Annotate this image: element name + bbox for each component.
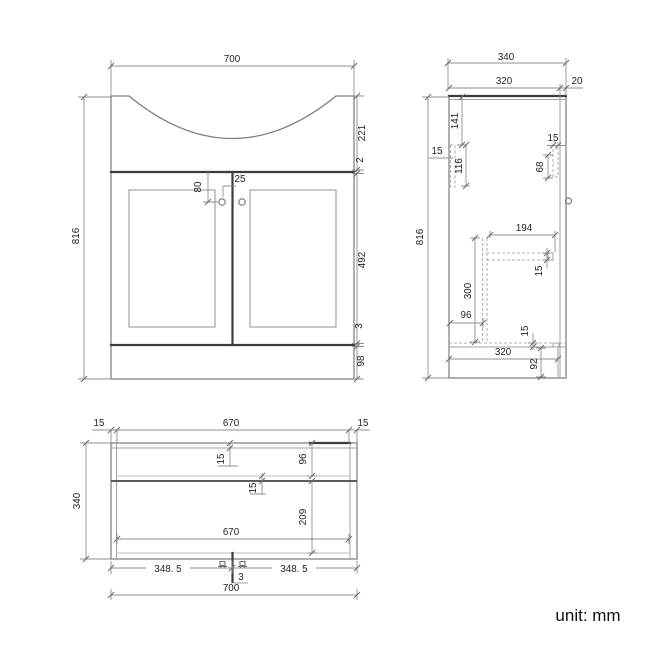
plan-right-handle-icon <box>238 562 247 569</box>
front-dim-816-line <box>78 97 111 379</box>
plan-dim-15-left-label: 15 <box>94 418 105 429</box>
side-dim-92-label: 92 <box>529 359 540 370</box>
side-dim-15-front-label: 15 <box>432 146 443 157</box>
plan-dim-15-rail-label: 15 <box>248 482 259 493</box>
plan-outline <box>111 443 357 559</box>
side-dim-68-label: 68 <box>535 161 546 172</box>
plan-dim-670-top-label: 670 <box>223 418 240 429</box>
front-dim-816-label: 816 <box>71 227 82 244</box>
side-dim-300-label: 300 <box>463 282 474 299</box>
front-view: 700 816 221 2 492 3 98 80 25 <box>71 54 368 382</box>
technical-drawing-page: 700 816 221 2 492 3 98 80 25 <box>0 0 650 650</box>
side-dim-15-bottom-label: 15 <box>520 325 531 336</box>
side-dim-340-label: 340 <box>498 52 515 63</box>
plan-left-handle-body <box>220 562 225 566</box>
plan-dim-3-label: 3 <box>238 572 244 583</box>
side-dim-816-label: 816 <box>415 228 426 245</box>
front-left-handle-hole <box>219 199 225 205</box>
plan-dim-ticks <box>83 427 360 598</box>
plan-dim-348-left-label: 348. 5 <box>154 564 182 575</box>
side-bottom-end-block <box>553 343 559 347</box>
front-dim-221-label: 221 <box>357 125 368 141</box>
plan-dim-670-inner-label: 670 <box>223 527 240 538</box>
plan-view: 15 670 15 340 15 96 15 209 670 348. 5 34… <box>72 418 370 600</box>
plan-right-handle-body <box>240 562 245 566</box>
plan-dim-15-back-label: 15 <box>216 453 227 464</box>
plan-dim-96-label: 96 <box>298 453 309 464</box>
side-dim-320-top-label: 320 <box>496 76 513 87</box>
front-right-handle-hole <box>239 199 245 205</box>
side-dim-194-line <box>490 231 555 252</box>
front-right-door-panel <box>250 190 336 327</box>
side-dim-20-label: 20 <box>572 76 583 87</box>
side-dim-ticks <box>425 60 569 381</box>
side-dim-116-label: 116 <box>454 158 465 174</box>
plan-dim-15-right-label: 15 <box>358 418 369 429</box>
plan-dim-340-label: 340 <box>72 492 83 509</box>
side-dim-96-label: 96 <box>461 310 472 321</box>
plan-dim-700-label: 700 <box>223 583 240 594</box>
front-dim-2-label: 2 <box>355 157 366 162</box>
plan-dim-209-label: 209 <box>298 509 309 525</box>
side-dim-15-shelf-line <box>542 248 552 268</box>
side-dim-15-rear-label: 15 <box>548 133 559 144</box>
side-shelf-hidden-lines <box>487 253 553 260</box>
plan-left-handle-icon <box>218 562 227 569</box>
plan-dim-top-line <box>92 430 370 443</box>
front-dim-ticks <box>81 63 360 382</box>
front-dim-80-label: 80 <box>193 181 204 192</box>
front-dim-98-label: 98 <box>356 355 367 366</box>
vanity-dimension-drawing: 700 816 221 2 492 3 98 80 25 <box>0 0 650 650</box>
front-dim-3-label: 3 <box>354 323 365 329</box>
side-dim-320-bottom-label: 320 <box>495 347 512 358</box>
front-dim-700-label: 700 <box>224 54 241 65</box>
unit-note: unit: mm <box>555 606 620 625</box>
plan-dim-348-right-label: 348. 5 <box>280 564 308 575</box>
front-left-door-panel <box>129 190 215 327</box>
front-dim-25-line <box>223 186 236 197</box>
front-dim-492-label: 492 <box>357 252 368 268</box>
front-dim-80-line <box>203 172 218 202</box>
front-dim-25-label: 25 <box>235 174 246 185</box>
side-dim-816-line <box>422 97 449 378</box>
side-dim-15-shelf-label: 15 <box>534 265 545 276</box>
front-dim-700-line <box>111 60 354 96</box>
front-outline-top-basin-curve <box>111 96 354 139</box>
side-view: 340 320 20 816 141 15 116 15 68 194 15 3… <box>415 52 583 381</box>
plan-dim-340-line <box>80 443 111 559</box>
side-dim-141-label: 141 <box>450 113 461 129</box>
side-dim-194-label: 194 <box>516 223 533 234</box>
